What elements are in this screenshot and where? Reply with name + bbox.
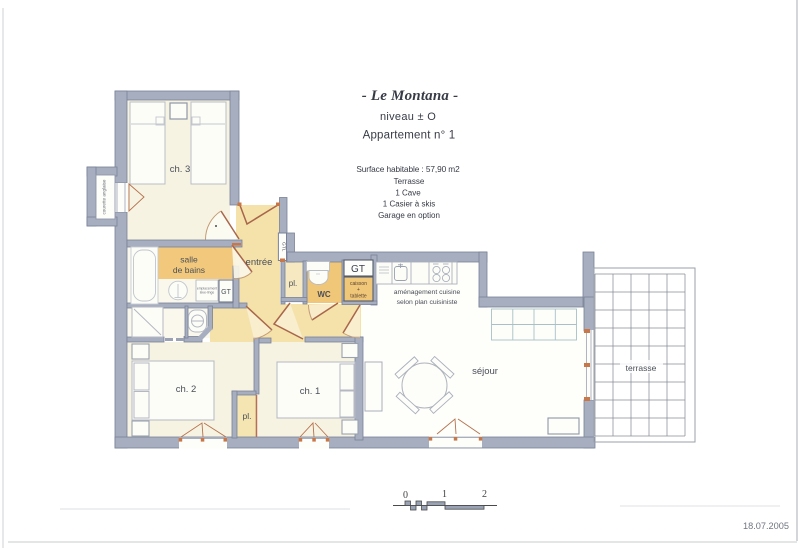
svg-text:ch. 3: ch. 3 (170, 164, 191, 175)
svg-text:- Le Montana -: - Le Montana - (362, 88, 459, 104)
svg-text:GT: GT (351, 264, 365, 275)
svg-text:18.07.2005: 18.07.2005 (743, 521, 789, 531)
svg-text:+: + (357, 287, 360, 293)
svg-text:1 Cave: 1 Cave (395, 189, 421, 198)
svg-text:ch. 1: ch. 1 (300, 386, 321, 397)
svg-text:1 Casier à skis: 1 Casier à skis (383, 200, 435, 209)
svg-text:courette anglaise: courette anglaise (102, 179, 107, 214)
svg-text:aménagement cuisine: aménagement cuisine (394, 289, 461, 296)
svg-text:0: 0 (403, 490, 408, 501)
svg-text:Terrasse: Terrasse (394, 177, 425, 186)
svg-text:séjour: séjour (472, 366, 498, 377)
svg-text:GTL: GTL (281, 242, 287, 252)
svg-text:entrée: entrée (246, 257, 273, 268)
svg-text:salle: salle (180, 255, 198, 265)
svg-text:terrasse: terrasse (626, 363, 657, 373)
svg-text:lave-linge: lave-linge (200, 291, 215, 295)
svg-text:ch. 2: ch. 2 (176, 384, 197, 395)
svg-text:de bains: de bains (173, 265, 205, 275)
svg-text:pl.: pl. (289, 279, 297, 288)
svg-text:WC: WC (317, 290, 331, 299)
svg-text:GT: GT (221, 289, 231, 296)
svg-text:1: 1 (442, 489, 447, 500)
svg-text:2: 2 (482, 489, 487, 500)
svg-text:niveau ± O: niveau ± O (380, 111, 436, 123)
svg-text:Appartement n° 1: Appartement n° 1 (363, 130, 456, 142)
svg-text:pl.: pl. (243, 411, 252, 421)
svg-text:tablette: tablette (350, 294, 367, 300)
svg-text:Surface habitable : 57,90 m2: Surface habitable : 57,90 m2 (356, 164, 460, 174)
svg-text:Garage en option: Garage en option (378, 211, 440, 220)
svg-text:selon plan cuisiniste: selon plan cuisiniste (397, 299, 458, 306)
